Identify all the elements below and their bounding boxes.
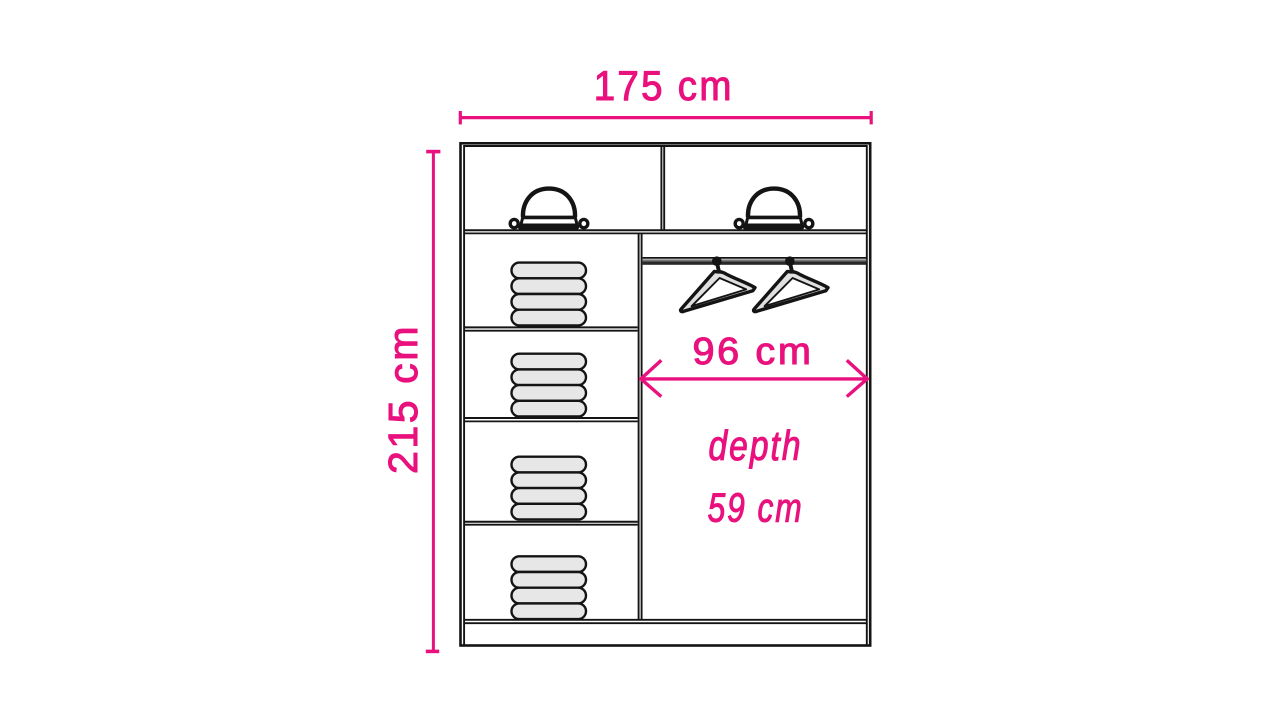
svg-text:59 cm: 59 cm xyxy=(708,485,804,531)
svg-text:96 cm: 96 cm xyxy=(693,331,814,373)
svg-text:215 cm: 215 cm xyxy=(380,324,426,474)
svg-text:depth: depth xyxy=(709,422,803,469)
svg-text:175 cm: 175 cm xyxy=(594,62,734,109)
